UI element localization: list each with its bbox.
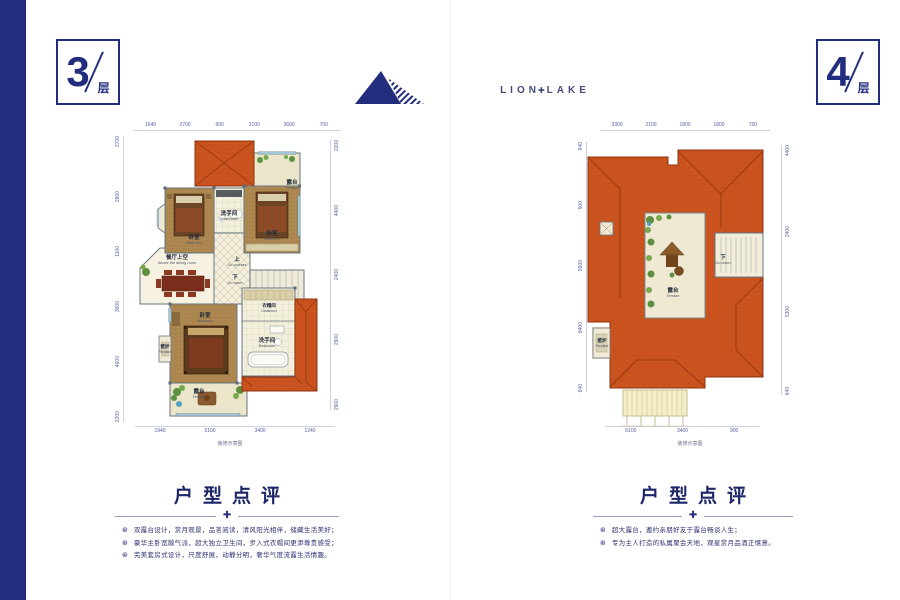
dims-left: 270028001100360046002200: [112, 136, 124, 422]
bullet-icon: ⊛: [122, 552, 128, 560]
dim-label: 5300: [785, 306, 791, 317]
mountain-logo-icon: [352, 66, 430, 110]
floor-number: 3: [66, 51, 87, 93]
room-label-bedroom-left: 卧室 Bedroom: [186, 235, 201, 246]
room-label-dining-void: 餐厅上空 Above the dining room: [158, 255, 196, 266]
review-items: ⊛ 双露台设计，赏月观景，品茗阅读，清风阳光相伴，储藏生活美好； ⊛ 豪华主卧宽…: [115, 527, 339, 560]
dim-label: 600: [202, 122, 237, 130]
dim-label: 1640: [133, 122, 168, 130]
dim-label: 2700: [115, 136, 121, 147]
divider-cross-icon: ✚: [216, 511, 238, 521]
dim-label: 3600: [115, 301, 121, 312]
brand-name-lion: LION: [500, 85, 540, 96]
dim-label: 1940: [135, 427, 185, 435]
review-divider: ✚: [593, 511, 793, 521]
bullet-icon: ⊛: [600, 527, 606, 535]
dim-label: 700: [306, 122, 341, 130]
review-item: ⊛ 专为主人打造的私属聚会天地，观星赏月品酒正惬意。: [593, 540, 793, 548]
room-label-bedroom-right: 卧室 Bedroom: [264, 231, 279, 242]
dim-label: 4600: [115, 356, 121, 367]
dim-label: 1100: [115, 246, 121, 257]
dim-label: 2400: [785, 226, 791, 237]
review-text: 双露台设计，赏月观景，品茗阅读，清风阳光相伴，储藏生活美好；: [134, 527, 338, 535]
dim-label: 3300: [600, 122, 634, 130]
dims-right: 22004400240029002900: [330, 140, 342, 410]
room-label-washroom-lower: 洗手间 Restroom: [259, 338, 276, 349]
dim-label: 900: [708, 427, 760, 435]
review-title: 户型点评: [115, 486, 339, 508]
floor-badge-3f: 3 层: [56, 39, 120, 105]
dim-label: 2100: [237, 122, 272, 130]
divider-cross-icon: ✚: [682, 511, 704, 521]
dim-label: 1800: [702, 122, 736, 130]
plan-caption: 装修示意图: [575, 440, 805, 447]
dim-label: 2700: [168, 122, 203, 130]
review-text: 豪华主卧宽敞气派，超大独立卫生间，步入式衣帽间更添尊贵感受；: [134, 540, 338, 548]
floor-plan-3f: 1640270060021003600700 27002800110036004…: [110, 120, 350, 465]
terrace-bottom-area: [170, 383, 247, 416]
dim-label: 2200: [115, 411, 121, 422]
dim-label: 700: [736, 122, 770, 130]
dims-top: 1640270060021003600700: [133, 122, 341, 131]
plan-caption: 装修示意图: [110, 440, 350, 447]
bullet-icon: ⊛: [600, 540, 606, 548]
review-items: ⊛ 超大露台，邀约亲朋好友于露台畅谈人生； ⊛ 专为主人打造的私属聚会天地，观星…: [593, 527, 793, 548]
floor-plan-4f-drawing: [575, 138, 785, 428]
floor-badge-4f: 4 层: [816, 39, 880, 105]
chimney: [600, 222, 613, 235]
dim-label: 3400: [657, 427, 709, 435]
room-label-stairs-down: 下 Go down: [227, 275, 242, 286]
dim-label: 2200: [334, 140, 340, 151]
review-text: 超大露台，邀约亲朋好友于露台畅谈人生；: [612, 527, 741, 535]
page: 3 层 4 层 LION ✚ LAKE 16402700600210036007…: [0, 0, 900, 600]
divider-line: [704, 516, 793, 517]
room-label-fireplace-3f: 壁炉 Fireplace: [158, 344, 171, 355]
dim-label: 640: [785, 387, 791, 395]
room-label-fireplace-4f: 壁炉 Fireplace: [595, 338, 608, 349]
floor-unit: 层: [858, 79, 870, 96]
floor-number: 4: [826, 51, 847, 93]
review-item: ⊛ 超大露台，邀约亲朋好友于露台畅谈人生；: [593, 527, 793, 535]
review-section-4f: 户型点评 ✚ ⊛ 超大露台，邀约亲朋好友于露台畅谈人生； ⊛ 专为主人打造的私属…: [593, 486, 793, 552]
room-label-terrace-bottom: 露台 Terrace: [193, 389, 206, 400]
dim-label: 2900: [334, 399, 340, 410]
floor-unit: 层: [98, 79, 110, 96]
bedroom-right-area: [244, 186, 300, 253]
room-label-washroom-center: 洗手间 Washroom: [220, 211, 238, 222]
divider-line: [593, 516, 682, 517]
review-text: 专为主人打造的私属聚会天地，观星赏月品酒正惬意。: [612, 540, 775, 548]
dim-label: 4400: [785, 145, 791, 156]
review-item: ⊛ 双露台设计，赏月观景，品茗阅读，清风阳光相伴，储藏生活美好；: [115, 527, 339, 535]
dim-label: 5100: [605, 427, 657, 435]
dim-label: 2900: [334, 334, 340, 345]
pergola: [621, 390, 689, 426]
dim-label: 1240: [285, 427, 335, 435]
review-item: ⊛ 完美套房式设计，尺度舒展，动静分明，奢华气度流露生活情趣。: [115, 552, 339, 560]
review-item: ⊛ 豪华主卧宽敞气派，超大独立卫生间，步入式衣帽间更添尊贵感受；: [115, 540, 339, 548]
review-divider: ✚: [115, 511, 339, 521]
dim-label: 2800: [115, 191, 121, 202]
brand-logo: LION ✚ LAKE: [490, 82, 600, 98]
room-label-terrace-top: 露台 Terrace: [286, 180, 299, 191]
courtyard-terrace-area: [645, 213, 705, 318]
room-label-stairs-up: 上 Go upstairs: [227, 257, 246, 268]
dim-label: 4400: [334, 205, 340, 216]
center-divider: [450, 0, 451, 600]
divider-line: [115, 516, 216, 517]
left-accent-bar: [0, 0, 26, 600]
brand-name-lake: LAKE: [547, 85, 590, 96]
divider-line: [238, 516, 339, 517]
room-label-terrace-4f: 露台 Terrace: [667, 288, 680, 299]
room-label-stairs-down-4f: 下 Go down: [715, 255, 730, 266]
dims-top: 3300210018001800700: [600, 122, 770, 131]
dim-label: 2100: [634, 122, 668, 130]
bullet-icon: ⊛: [122, 540, 128, 548]
dims-bottom: 1940510034001240: [135, 426, 335, 435]
review-title: 户型点评: [593, 486, 793, 508]
review-text: 完美套房式设计，尺度舒展，动静分明，奢华气度流露生活情趣。: [134, 552, 331, 560]
bullet-icon: ⊛: [122, 527, 128, 535]
dim-label: 3400: [235, 427, 285, 435]
review-section-3f: 户型点评 ✚ ⊛ 双露台设计，赏月观景，品茗阅读，清风阳光相伴，储藏生活美好； …: [115, 486, 339, 565]
room-label-master-bedroom: 卧室 Bedroom: [197, 313, 212, 324]
dim-label: 5100: [185, 427, 235, 435]
dim-label: 2400: [334, 269, 340, 280]
brand-cross-icon: ✚: [538, 86, 545, 95]
dim-label: 1800: [668, 122, 702, 130]
washroom-lower-area: [242, 288, 295, 376]
floor-plan-4f: 3300210018001800700 64050059008400640 44…: [575, 120, 805, 465]
room-label-cloakroom: 衣帽间 Cloakroom: [261, 303, 276, 314]
roof-top-section: [195, 141, 254, 186]
dim-label: 3600: [272, 122, 307, 130]
